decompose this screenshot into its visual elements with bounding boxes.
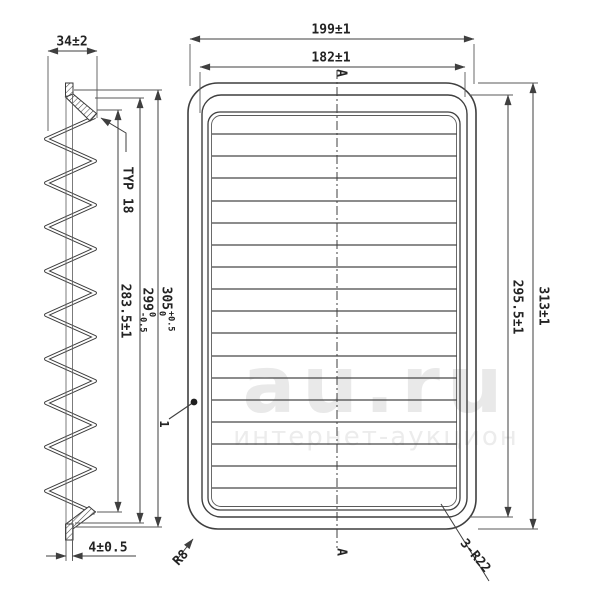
plan-extension-lines [190,44,538,529]
dim-305-base: 305 [160,287,173,310]
dim-299-tol-upper: 0 [147,312,156,332]
section-marker-a-bottom: A [335,548,348,556]
pleat-lines [212,134,457,488]
dim-text-283: 283.5±1 [119,284,132,339]
pleat-zigzag [46,117,95,513]
dim-text-34: 34±2 [56,36,87,49]
dim-305-tol-lower: 0 [158,311,167,331]
dim-text-182: 182±1 [311,52,350,65]
dim-text-299: 2990-0.5 [139,288,156,333]
dim-text-313: 313±1 [537,286,550,325]
dim-text-295: 295.5±1 [511,280,524,335]
top-cap-fold [66,94,97,121]
technical-drawing-air-filter: au.ru интернет-аукцион [0,0,600,600]
dim-299-base: 299 [141,288,154,311]
item1-dot [191,399,198,406]
pleat-typ-label: TYP 18 [121,167,134,214]
filter-step-outline [202,95,467,517]
dim-text-199: 199±1 [311,24,350,37]
filter-outer-outline [188,83,476,529]
section-marker-a-top: A [335,69,348,77]
plan-view-linework [169,39,538,581]
dim-text-305: 305+0.50 [158,287,175,332]
item-number-label: 1 [158,420,170,427]
dim-305-tol-upper: +0.5 [166,311,175,331]
dim-299-tol-lower: -0.5 [139,312,148,332]
bottom-end-cap [66,524,74,540]
dim-text-4: 4±0.5 [88,542,127,555]
typ18-leader [101,118,126,152]
item1-leader [169,399,197,419]
